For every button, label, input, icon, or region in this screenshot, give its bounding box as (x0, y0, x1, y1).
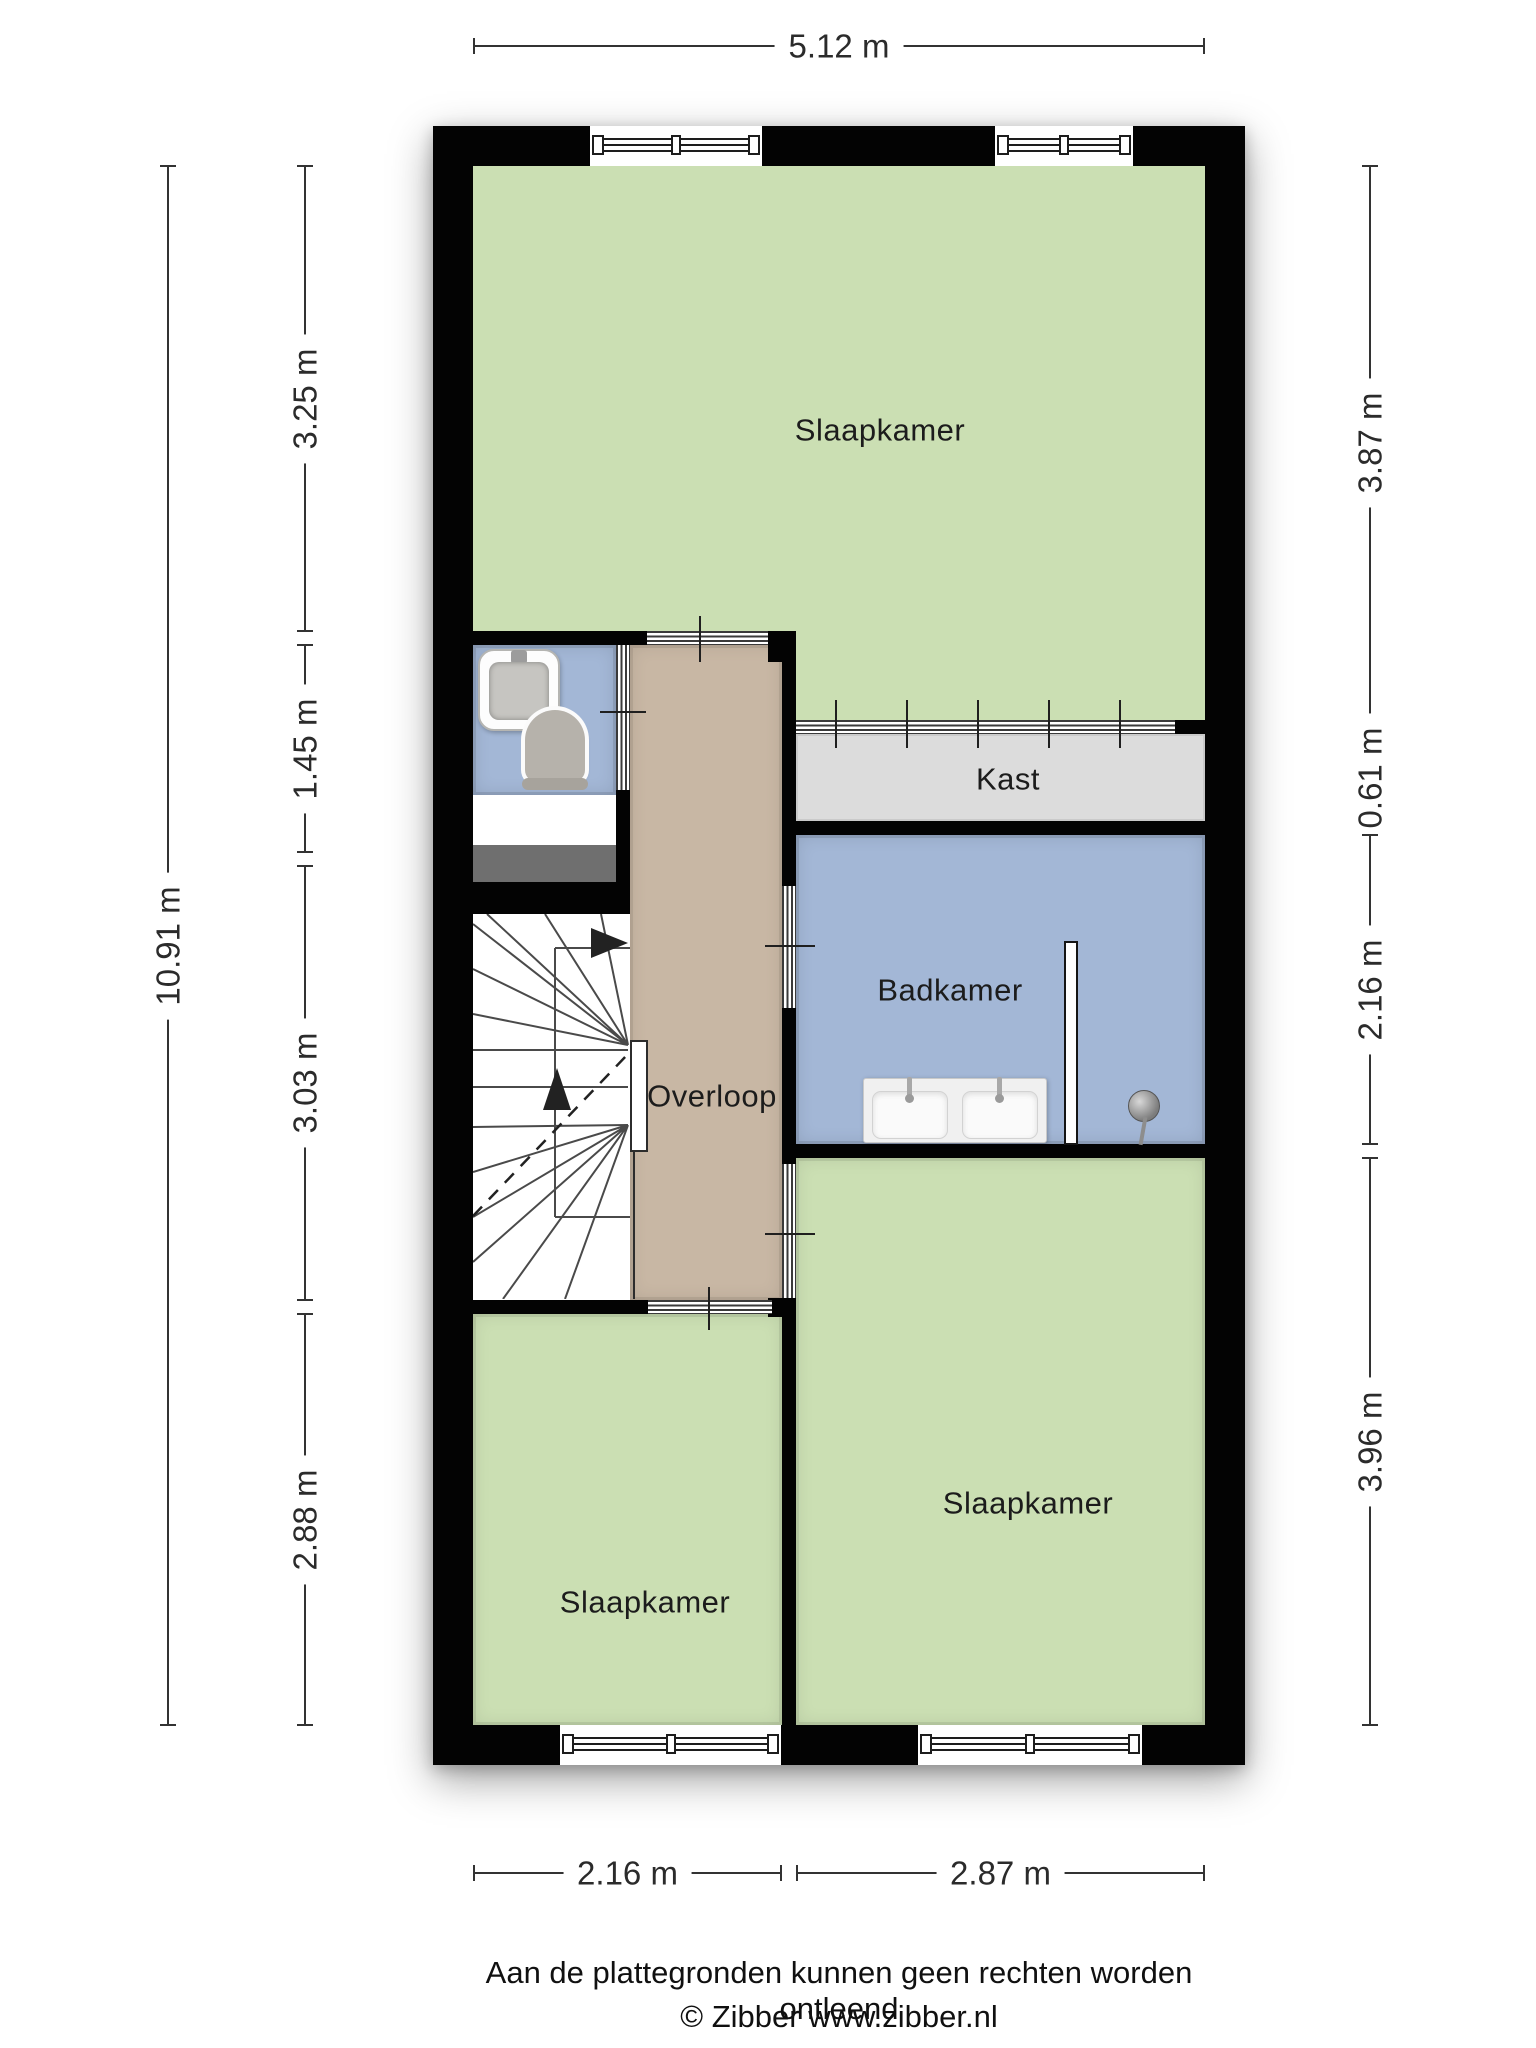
wall-segment (473, 882, 630, 914)
exterior-wall-left (433, 126, 473, 1765)
wall-segment (782, 631, 796, 886)
exterior-wall-top (762, 126, 995, 166)
stair-railing (630, 1040, 648, 1152)
copyright-text: © Zibber www.zibber.nl (433, 1999, 1245, 2035)
exterior-wall-bottom (433, 1725, 560, 1765)
room-label-slaapkamer-bottom-right: Slaapkamer (943, 1488, 1113, 1519)
window (590, 126, 762, 166)
door-opening (648, 1300, 772, 1314)
door-opening (647, 631, 768, 645)
wall-segment (473, 631, 647, 645)
stair-edge-line (633, 1150, 635, 1299)
dimension-left-segment: 3.25 m (304, 166, 306, 631)
dimension-label: 2.16 m (563, 1857, 692, 1890)
dimension-label: 3.96 m (1354, 1377, 1387, 1506)
stair-landing-strip (473, 845, 616, 882)
room-label-slaapkamer-top: Slaapkamer (795, 415, 965, 446)
dimension-right-segment: 2.16 m (1369, 835, 1371, 1144)
door-swing-tick (699, 616, 701, 662)
door-swing-tick (708, 1287, 710, 1330)
dimension-top: 5.12 m (473, 45, 1205, 47)
shower-head-icon (1128, 1090, 1160, 1122)
closet-door-tick (835, 700, 837, 748)
door-opening (782, 886, 796, 1008)
room-slaapkamer-bottom-right (796, 1158, 1205, 1725)
stairs-up-arrow (543, 1068, 571, 1110)
dimension-right-segment: 0.61 m (1369, 734, 1371, 821)
door-swing-tick (600, 711, 646, 713)
dimension-label: 3.87 m (1354, 379, 1387, 508)
dimension-left-total: 10.91 m (167, 166, 169, 1725)
door-opening (616, 645, 630, 790)
closet-door-tick (1048, 700, 1050, 748)
wall-segment (1175, 720, 1205, 734)
dimension-label: 1.45 m (289, 684, 322, 813)
dimension-bottom-segment: 2.16 m (473, 1872, 782, 1874)
dimension-label: 0.61 m (1354, 713, 1387, 842)
window (560, 1725, 781, 1765)
exterior-wall-bottom (781, 1725, 918, 1765)
dimension-right-segment: 3.87 m (1369, 166, 1371, 720)
room-label-kast: Kast (976, 764, 1040, 795)
stairs-drawing (473, 914, 630, 1299)
room-label-overloop: Overloop (647, 1081, 777, 1112)
dimension-label: 2.87 m (936, 1857, 1065, 1890)
door-swing-tick (765, 945, 815, 947)
window (995, 126, 1133, 166)
dimension-left-segment: 2.88 m (304, 1314, 306, 1725)
wall-segment (782, 1008, 796, 1164)
dimension-label: 5.12 m (775, 30, 904, 63)
room-slaapkamer-bottom-left (473, 1314, 782, 1725)
closet-door-tick (906, 700, 908, 748)
stairs (473, 914, 630, 1299)
exterior-wall-right (1205, 126, 1245, 1765)
dimension-label: 2.88 m (289, 1455, 322, 1584)
wall-segment (782, 1317, 796, 1725)
toilet-fixture (525, 710, 585, 782)
dimension-label: 10.91 m (152, 872, 185, 1019)
dimension-bottom-segment: 2.87 m (796, 1872, 1205, 1874)
wall-segment (782, 821, 1205, 835)
dimension-label: 3.03 m (289, 1019, 322, 1148)
wall-segment (768, 1298, 796, 1317)
dimension-left-segment: 3.03 m (304, 866, 306, 1300)
floor-plan-canvas: Slaapkamer Kast Badkamer Overloop Slaapk… (0, 0, 1536, 2048)
closet-door-tick (977, 700, 979, 748)
exterior-wall-bottom (1142, 1725, 1245, 1765)
wall-segment (782, 1144, 1205, 1158)
window (918, 1725, 1142, 1765)
room-label-badkamer: Badkamer (877, 975, 1022, 1006)
door-swing-tick (765, 1233, 815, 1235)
dimension-left-segment: 1.45 m (304, 645, 306, 852)
dimension-label: 3.25 m (289, 334, 322, 463)
room-label-slaapkamer-bottom-left: Slaapkamer (560, 1587, 730, 1618)
wall-segment (473, 1300, 648, 1314)
door-opening (782, 1164, 796, 1298)
dimension-label: 2.16 m (1354, 925, 1387, 1054)
dimension-right-segment: 3.96 m (1369, 1158, 1371, 1725)
closet-door-tick (1119, 700, 1121, 748)
shower-screen (1064, 941, 1078, 1145)
double-washbasin-fixture (863, 1078, 1047, 1143)
room-overloop (630, 645, 782, 1300)
